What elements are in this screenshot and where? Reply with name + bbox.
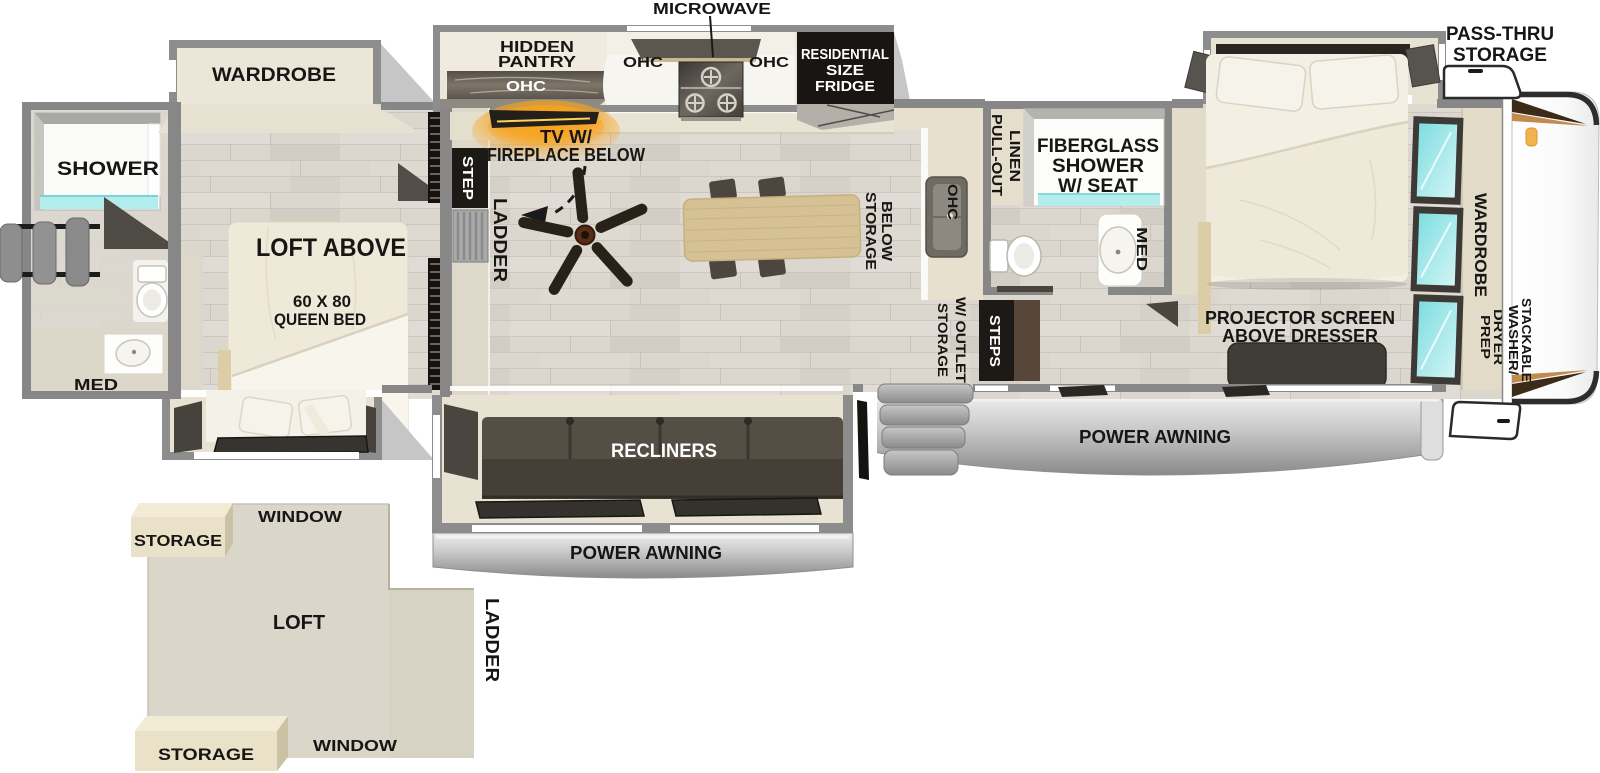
svg-text:PANTRY: PANTRY	[498, 54, 576, 71]
svg-text:W/ SEAT: W/ SEAT	[1058, 176, 1138, 197]
svg-text:WINDOW: WINDOW	[258, 509, 343, 526]
svg-text:LINEN: LINEN	[1006, 130, 1023, 182]
svg-text:BELOW: BELOW	[878, 201, 895, 262]
svg-text:OHC: OHC	[945, 184, 961, 220]
svg-text:WARDROBE: WARDROBE	[1471, 193, 1490, 297]
svg-text:SHOWER: SHOWER	[57, 159, 159, 180]
svg-text:LOFT: LOFT	[273, 612, 325, 634]
svg-text:STORAGE: STORAGE	[935, 303, 951, 377]
svg-text:PASS-THRU: PASS-THRU	[1446, 24, 1554, 45]
svg-text:PREP: PREP	[1478, 315, 1493, 359]
svg-text:RESIDENTIAL: RESIDENTIAL	[801, 46, 889, 63]
svg-text:LADDER: LADDER	[482, 598, 502, 682]
svg-text:LADDER: LADDER	[490, 198, 510, 282]
svg-text:LOFT ABOVE: LOFT ABOVE	[256, 234, 406, 262]
svg-text:SHOWER: SHOWER	[1052, 156, 1144, 177]
svg-text:RECLINERS: RECLINERS	[611, 441, 717, 462]
svg-text:PULL-OUT: PULL-OUT	[988, 114, 1005, 196]
svg-text:STEPS: STEPS	[986, 315, 1003, 367]
svg-text:STORAGE: STORAGE	[134, 533, 222, 550]
svg-text:FIREPLACE BELOW: FIREPLACE BELOW	[487, 145, 645, 165]
svg-text:QUEEN BED: QUEEN BED	[274, 310, 366, 329]
svg-text:STORAGE: STORAGE	[158, 745, 254, 764]
svg-text:WASHER/: WASHER/	[1506, 305, 1521, 375]
svg-text:WARDROBE: WARDROBE	[212, 65, 336, 86]
svg-text:STORAGE: STORAGE	[862, 192, 879, 270]
svg-text:OHC: OHC	[623, 54, 663, 71]
svg-text:OHC: OHC	[749, 54, 789, 71]
svg-text:MICROWAVE: MICROWAVE	[653, 1, 771, 18]
svg-text:STEP: STEP	[459, 156, 476, 200]
svg-text:FRIDGE: FRIDGE	[815, 78, 875, 95]
svg-text:WINDOW: WINDOW	[313, 738, 398, 755]
svg-text:SIZE: SIZE	[826, 62, 864, 79]
svg-text:POWER AWNING: POWER AWNING	[1079, 427, 1231, 447]
svg-text:MED: MED	[1133, 227, 1150, 271]
svg-text:POWER AWNING: POWER AWNING	[570, 543, 722, 563]
svg-text:60 X 80: 60 X 80	[293, 292, 351, 311]
svg-text:OHC: OHC	[506, 78, 546, 95]
svg-text:FIBERGLASS: FIBERGLASS	[1037, 136, 1159, 157]
svg-text:PROJECTOR SCREEN: PROJECTOR SCREEN	[1205, 308, 1395, 328]
svg-text:TV W/: TV W/	[540, 127, 592, 147]
svg-text:W/ OUTLET: W/ OUTLET	[953, 297, 969, 383]
svg-text:STORAGE: STORAGE	[1453, 45, 1547, 66]
